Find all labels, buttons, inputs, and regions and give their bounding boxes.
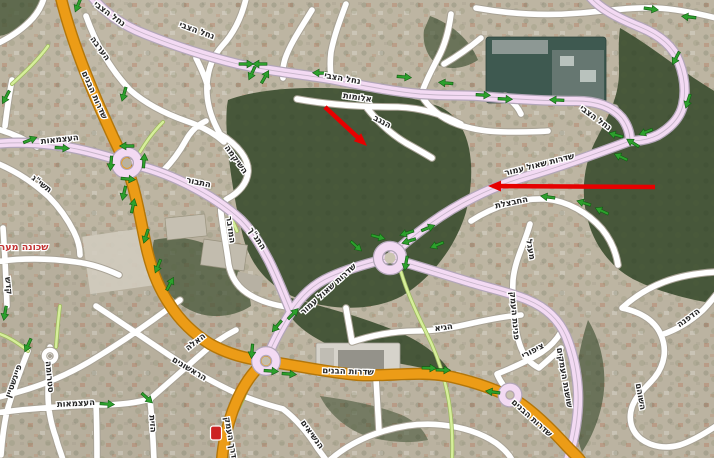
roundabout: [378, 246, 402, 270]
street-label: שדרות הבנים: [322, 366, 374, 378]
terrain-layer: [0, 0, 714, 458]
satellite-map[interactable]: נחל הצבינחל הצבינחל הצבינחל הצביהערבהאלו…: [0, 0, 714, 458]
street-label: קדש: [2, 276, 14, 295]
street-label: הזית: [146, 415, 157, 433]
neighborhood-label: שכונה מער: [0, 242, 49, 253]
map-canvas[interactable]: נחל הצבינחל הצבינחל הצבינחל הצביהערבהאלו…: [0, 0, 714, 458]
route-shield: [211, 426, 222, 440]
street-label: העצמאות: [57, 398, 96, 410]
roundabout: [116, 152, 138, 174]
large-building: [165, 214, 207, 240]
